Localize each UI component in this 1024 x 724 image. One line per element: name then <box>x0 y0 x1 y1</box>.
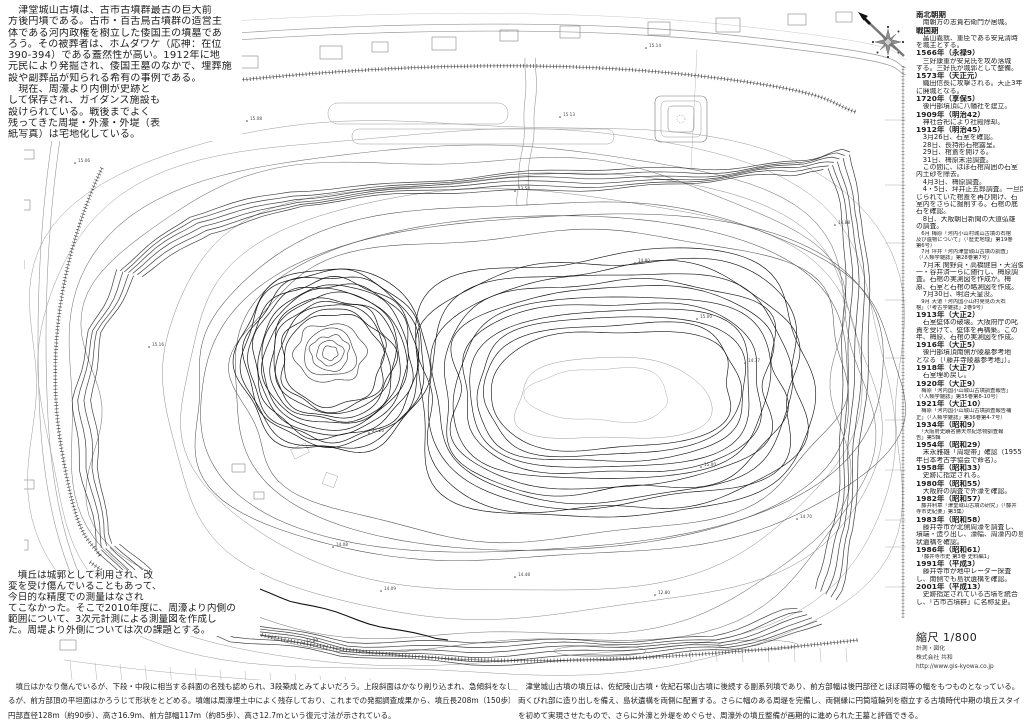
chronology-line: 内土砂を除去。 <box>916 171 1023 178</box>
chronology-line: 藤井寺市が地中レーダー探査 <box>916 568 1023 575</box>
chronology-line: 原、石室と石棺の略測図を作成。 <box>916 284 1023 291</box>
elevation-label: 12.80 <box>658 590 670 595</box>
intro-line: 方後円墳である。古市・百舌鳥古墳群の造営主 <box>8 16 242 27</box>
chronology-line: 畠山義就、重臣である安見清時 <box>916 35 1023 42</box>
north-arrow-icon <box>852 2 916 68</box>
chronology-line: じられていた棺蓋を再び開け、石 <box>916 194 1023 201</box>
intro-line: 残ってきた周堤・外濠・外堤（表 <box>8 118 242 129</box>
chronology-line: 1954年（昭和29） <box>916 441 1023 449</box>
elevation-label: 14.09 <box>384 586 396 591</box>
scale-credits-block: 縮尺 1/800 計測・図化 株式会社 共和 http://www.gis-ky… <box>916 631 1022 673</box>
chronology-column: 南北朝期 南朝方の志貴右衛門が居城。戦国期 畠山義就、重臣である安見清時を城主と… <box>916 11 1023 606</box>
chronology-line: 三好康重が安見氏を攻め落城 <box>916 58 1023 65</box>
elevation-label: 14.08 <box>336 542 348 547</box>
chronology-line: し、南側でも島状遺構を確認。 <box>916 576 1023 583</box>
chronology-line: を城主とする。 <box>916 42 1023 49</box>
chronology-line: の調査。 <box>916 223 1023 230</box>
note-line: 範囲について、3次元計測による測量図を作成し <box>8 614 260 625</box>
scale-text: 縮尺 1/800 <box>916 631 1022 645</box>
chronology-line: 史跡指定されている古墳を統合 <box>916 591 1023 598</box>
elevation-label: 15.00 <box>704 462 716 467</box>
chronology-line: 7月30日、明治天皇没。 <box>916 291 1023 298</box>
chronology-line: に廃城となる。 <box>916 88 1023 95</box>
footer-left-paragraph: 墳丘はかなり傷んでいるが、下段・中段に相当する斜面の名残も認められ、3段築成とみ… <box>8 680 510 723</box>
chronology-line: 28日、長持形石棺露呈。 <box>916 142 1023 149</box>
chronology-line: 査。石棺の実測図を作成か。梅 <box>916 276 1023 283</box>
footer-line: 両くびれ部に造り出しを備え、島状遺構を両側に配置する。さらに幅のある周堤を完備し… <box>518 694 1020 708</box>
intro-line: ろう。その被葬者は、ホムダワケ（応神：在位 <box>8 39 242 50</box>
chronology-line: 1920年（大正9） <box>916 380 1023 388</box>
note-line: てこなかった。そこで2010年度に、周濠より内側の <box>8 603 260 614</box>
chronology-line: 1921年（大正10） <box>916 400 1023 408</box>
chronology-line: 状遺構を確認。 <box>916 539 1023 546</box>
chronology-line: 梅原「河内国小山城山古墳調査報告補 <box>916 408 1023 414</box>
note-line: た。周堤より外側については次の課題とする。 <box>8 625 260 636</box>
chronology-line: 年、梅原、石棺の実測図を作成。 <box>916 334 1023 341</box>
intro-line: 津堂城山古墳は、古市古墳群最古の巨大前 <box>8 5 242 16</box>
chronology-line: 1934年（昭和9） <box>916 421 1023 429</box>
elevation-label: 14.48 <box>518 572 530 577</box>
chronology-line: 1566年（永禄9） <box>916 49 1023 57</box>
chronology-line: し、「古市古墳群」に名称変更。 <box>916 599 1023 606</box>
chronology-line: 大阪府の調査で外濠を確認。 <box>916 488 1023 495</box>
elevation-label: 14.80 <box>638 258 650 263</box>
chronology-line: 石室埋め戻し。 <box>916 372 1023 379</box>
footer-line: 津堂城山古墳の墳丘は、佐紀陵山古墳・佐紀石塚山古墳に後続する副系列墳であり、前方… <box>518 680 1020 694</box>
chronology-line: 神社合祀により社殿除却。 <box>916 119 1023 126</box>
elevation-label: 15.08 <box>250 116 262 121</box>
elevation-label: 21.20 <box>372 428 384 433</box>
chronology-line: 4・5日、坪井正五郎調査。一旦閉 <box>916 186 1023 193</box>
survey-map-page: 15.1315.1415.0613.5414.8815.0014.7721.20… <box>0 0 1024 724</box>
chronology-line: 31日、梅原末治調査。 <box>916 157 1023 164</box>
chronology-line: 織田信長に攻撃される。天正3年 <box>916 80 1023 87</box>
chronology-line: 石を確認。 <box>916 208 1023 215</box>
elevation-label: 12.80 <box>306 638 318 643</box>
chronology-line: 29日、棺蓋を開ける。 <box>916 149 1023 156</box>
chronology-line: する。三好氏が城郭として整備。 <box>916 65 1023 72</box>
elevation-label: 15.14 <box>649 43 661 48</box>
survey-note-paragraph: 墳丘は城郭として利用され、改変を受け傷んでいることもあって、今日的な精度での測量… <box>8 570 260 636</box>
chronology-line: 後円部墳頂に八幡社を建立。 <box>916 103 1023 110</box>
intro-line: 設や副葬品が知られる希有の事例である。 <box>8 73 242 84</box>
chronology-line: 石室壁体の破壊。大阪府庁の叱 <box>916 319 1023 326</box>
note-line: 変を受け傷んでいることもあって、 <box>8 581 260 592</box>
intro-line: 390-394）である蓋然性が高い。1912年に地 <box>8 50 242 61</box>
elevation-label: 13.54 <box>518 186 530 191</box>
chronology-line: 2001年（平成13） <box>916 583 1023 591</box>
chronology-line: 1918年（大正7） <box>916 364 1023 372</box>
chronology-line: 1916年（大正5） <box>916 341 1023 349</box>
chronology-line: 史跡に指定される。 <box>916 472 1023 479</box>
chronology-line: 墳端・造り出し、濠幅、周濠内の島 <box>916 531 1023 538</box>
chronology-line: 1991年（平成3） <box>916 560 1023 568</box>
intro-line: 元民により発掘され、倭国王墓のなかで、埋葬施 <box>8 61 242 72</box>
chronology-line: 藤井寺市が北側周濠を調査し、 <box>916 524 1023 531</box>
elevation-label: 14.77 <box>748 358 760 363</box>
chronology-line: 8日、大阪朝日新聞の大道弘雄 <box>916 216 1023 223</box>
elevation-label: 15.00 <box>700 314 712 319</box>
credit-line: 計測・図化 <box>916 645 1022 654</box>
chronology-line: 3月26日、石室を確認。 <box>916 134 1023 141</box>
chronology-line: 1573年（天正元） <box>916 72 1023 80</box>
chronology-line: 1720年（享保5） <box>916 95 1023 103</box>
intro-line: して保存され、ガイダンス施設も <box>8 95 242 106</box>
elevation-label: 14.88 <box>838 220 850 225</box>
chronology-line: 年日本考古学協会で命名）。 <box>916 457 1023 464</box>
intro-line: 現在、周濠より内側が史跡と <box>8 84 242 95</box>
intro-paragraph: 津堂城山古墳は、古市古墳群最古の巨大前方後円墳である。古市・百舌鳥古墳群の造営主… <box>8 5 242 141</box>
chronology-line: 6月 梅原「河内小山村城山古墳の石棺 <box>916 231 1023 237</box>
chronology-line: 一・谷井済一らに随行し、梅原調 <box>916 269 1023 276</box>
chronology-line: 1986年（昭和61） <box>916 546 1023 554</box>
chronology-line: 室内をさらに掘削する。石棺の底 <box>916 201 1023 208</box>
footer-line: を初めて実現させたもので、さらに外濠と外堤をめぐらせ、周濠外の墳丘整備が画期的に… <box>518 709 1020 723</box>
footer-right-paragraph: 津堂城山古墳の墳丘は、佐紀陵山古墳・佐紀石塚山古墳に後続する副系列墳であり、前方… <box>518 680 1020 723</box>
elevation-label: 14.70 <box>800 514 812 519</box>
credit-url: http://www.gis-kyowa.co.jp <box>916 663 1022 672</box>
chronology-line: 1909年（明治42） <box>916 111 1023 119</box>
chronology-line: 1980年（昭和55） <box>916 480 1023 488</box>
chronology-line: 南北朝期 <box>916 11 1023 19</box>
chronology-line: となる（「藤井寺陵墓参考地」）。 <box>916 357 1023 364</box>
note-line: 墳丘は城郭として利用され、改 <box>8 570 260 581</box>
chronology-line: 1958年（昭和33） <box>916 464 1023 472</box>
note-line: 今日的な精度での測量はなされ <box>8 592 260 603</box>
chronology-line: 後円部墳頂南側が陵墓参考地 <box>916 349 1023 356</box>
chronology-line: 戦国期 <box>916 27 1023 35</box>
chronology-line: 7月末 関野貞・高橋健自・天沼俊 <box>916 262 1023 269</box>
footer-line: 円部直径128m（約90歩）、高さ16.9m、前方部幅117m（約85歩）、高さ… <box>8 709 510 723</box>
intro-line: 体である河内政権を樹立した倭国王の墳墓であ <box>8 28 242 39</box>
chronology-line: 1982年（昭和57） <box>916 495 1023 503</box>
chronology-line: 1983年（昭和58） <box>916 516 1023 524</box>
intro-line: 設けられている。戦後までよく <box>8 107 242 118</box>
footer-line: 墳丘はかなり傷んでいるが、下段・中段に相当する斜面の名残も認められ、3段築成とみ… <box>8 680 510 694</box>
chronology-line: 1913年（大正2） <box>916 311 1023 319</box>
chronology-line: 責を受けて、壁体を再構築。この <box>916 327 1023 334</box>
elevation-label: 15.16 <box>152 342 164 347</box>
chronology-line: 末永雅雄「周堤帯」確認（1955 <box>916 449 1023 456</box>
chronology-line: この間に、ほぼ石棺周囲の石室 <box>916 164 1023 171</box>
credit-company: 株式会社 共和 <box>916 654 1022 663</box>
intro-line: 紙写真）は宅地化している。 <box>8 129 242 140</box>
chronology-line: 4月3日、梅原調査。 <box>916 179 1023 186</box>
elevation-label: 15.13 <box>563 112 575 117</box>
elevation-label: 15.06 <box>78 158 90 163</box>
chronology-line: 1912年（明治45） <box>916 126 1023 134</box>
chronology-line: 南朝方の志貴右衛門が居城。 <box>916 19 1023 26</box>
footer-line: るが、前方部頂の平坦面はかろうじて形状をとどめる。墳端は周濠埋土中によく残存して… <box>8 694 510 708</box>
